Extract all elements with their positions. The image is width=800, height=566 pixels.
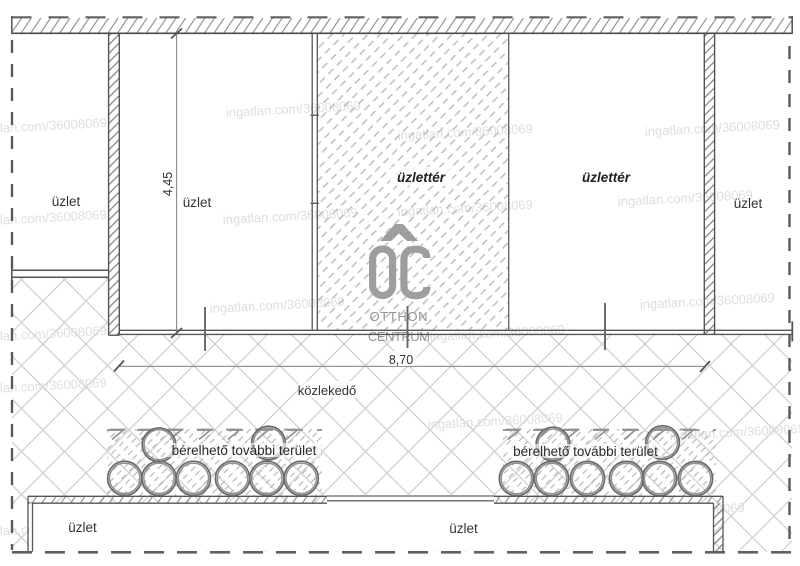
svg-text:bérelhető további terület: bérelhető további terület	[513, 444, 658, 459]
svg-text:üzlet: üzlet	[449, 521, 478, 536]
svg-text:CENTRUM: CENTRUM	[368, 329, 430, 344]
svg-text:8,70: 8,70	[389, 353, 413, 367]
svg-text:OTTHON: OTTHON	[370, 309, 428, 324]
svg-text:üzlet: üzlet	[734, 196, 763, 211]
svg-text:üzlet: üzlet	[52, 194, 81, 209]
svg-text:4,45: 4,45	[161, 172, 175, 196]
svg-text:bérelhető további terület: bérelhető további terület	[172, 443, 317, 458]
svg-text:üzlet: üzlet	[183, 195, 212, 210]
svg-text:üzlettér: üzlettér	[582, 170, 631, 185]
svg-text:közlekedő: közlekedő	[298, 383, 357, 398]
svg-text:üzlettér: üzlettér	[397, 170, 446, 185]
svg-text:üzlet: üzlet	[68, 520, 97, 535]
